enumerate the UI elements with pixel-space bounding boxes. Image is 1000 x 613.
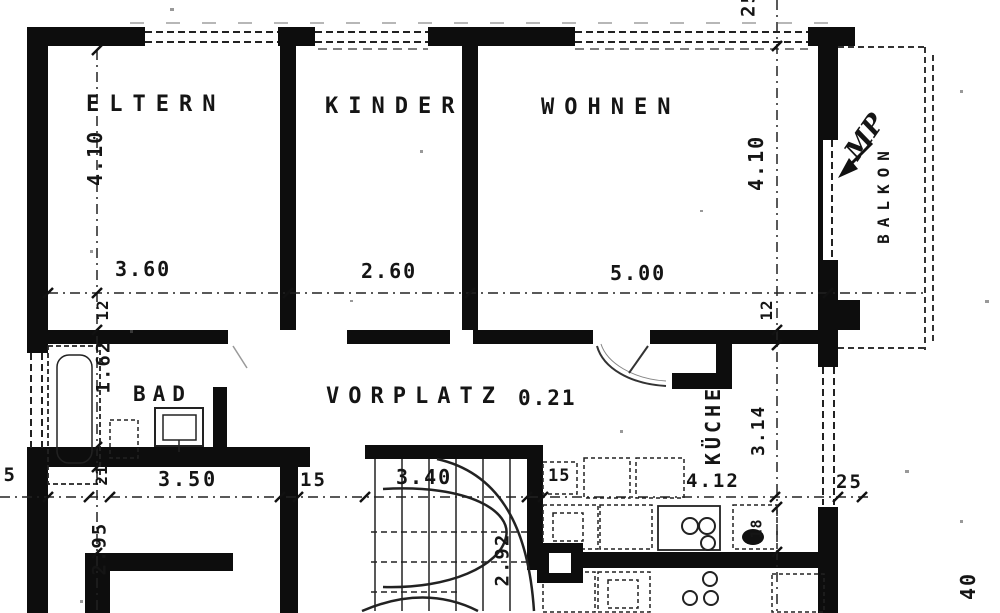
room-label-kinder: KINDER <box>325 96 464 118</box>
dim-stair-width: 3.40 <box>396 467 452 487</box>
dim-wall-15-right: 15 <box>300 471 327 490</box>
dim-wall-12-left: 12 <box>95 297 111 323</box>
dim-eltern-width: 3.60 <box>115 259 171 279</box>
dim-wall-25-left: 25 <box>0 466 17 485</box>
dim-wall-21: 21 <box>94 462 110 488</box>
dim-wohnen-width: 5.00 <box>610 263 666 283</box>
dim-wall-12-right: 12 <box>759 297 775 323</box>
door-marks <box>233 344 666 386</box>
dim-kinder-width: 2.60 <box>361 261 417 281</box>
floor-plan: ELTERN KINDER WOHNEN BAD VORPLATZ 0.21 K… <box>0 0 1000 613</box>
room-label-kueche: KÜCHE <box>703 375 723 475</box>
kitchen-fixtures <box>543 458 824 612</box>
room-label-vorplatz: VORPLATZ <box>326 386 504 408</box>
vorplatz-area-label: 0.21 <box>518 388 577 409</box>
dim-wall-25-right: 25 <box>836 473 863 492</box>
dim-room-bl-width: 3.50 <box>158 469 218 489</box>
room-label-balkon: BALKON <box>876 139 892 249</box>
dim-bad-height: 1.62 <box>95 344 114 394</box>
dim-kueche-height: 3.14 <box>750 406 768 456</box>
room-label-eltern: ELTERN <box>86 94 225 116</box>
dim-wall-25-top: 25 <box>740 0 759 21</box>
chimney <box>537 543 583 583</box>
room-label-wohnen: WOHNEN <box>541 97 680 119</box>
dim-eltern-height: 4.10 <box>85 136 105 186</box>
dim-wohnen-height: 4.10 <box>746 141 766 191</box>
room-label-bad: BAD <box>133 384 192 405</box>
dim-wall-15-box: 15 <box>548 468 570 485</box>
dim-edge-40: 40 <box>958 569 978 603</box>
dim-kueche-width: 4.12 <box>686 472 740 491</box>
dim-stair-height: 2.92 <box>494 537 513 587</box>
dim-room-bl-height: 2.95 <box>91 526 110 576</box>
dim-wall-18: 18 <box>750 517 765 541</box>
